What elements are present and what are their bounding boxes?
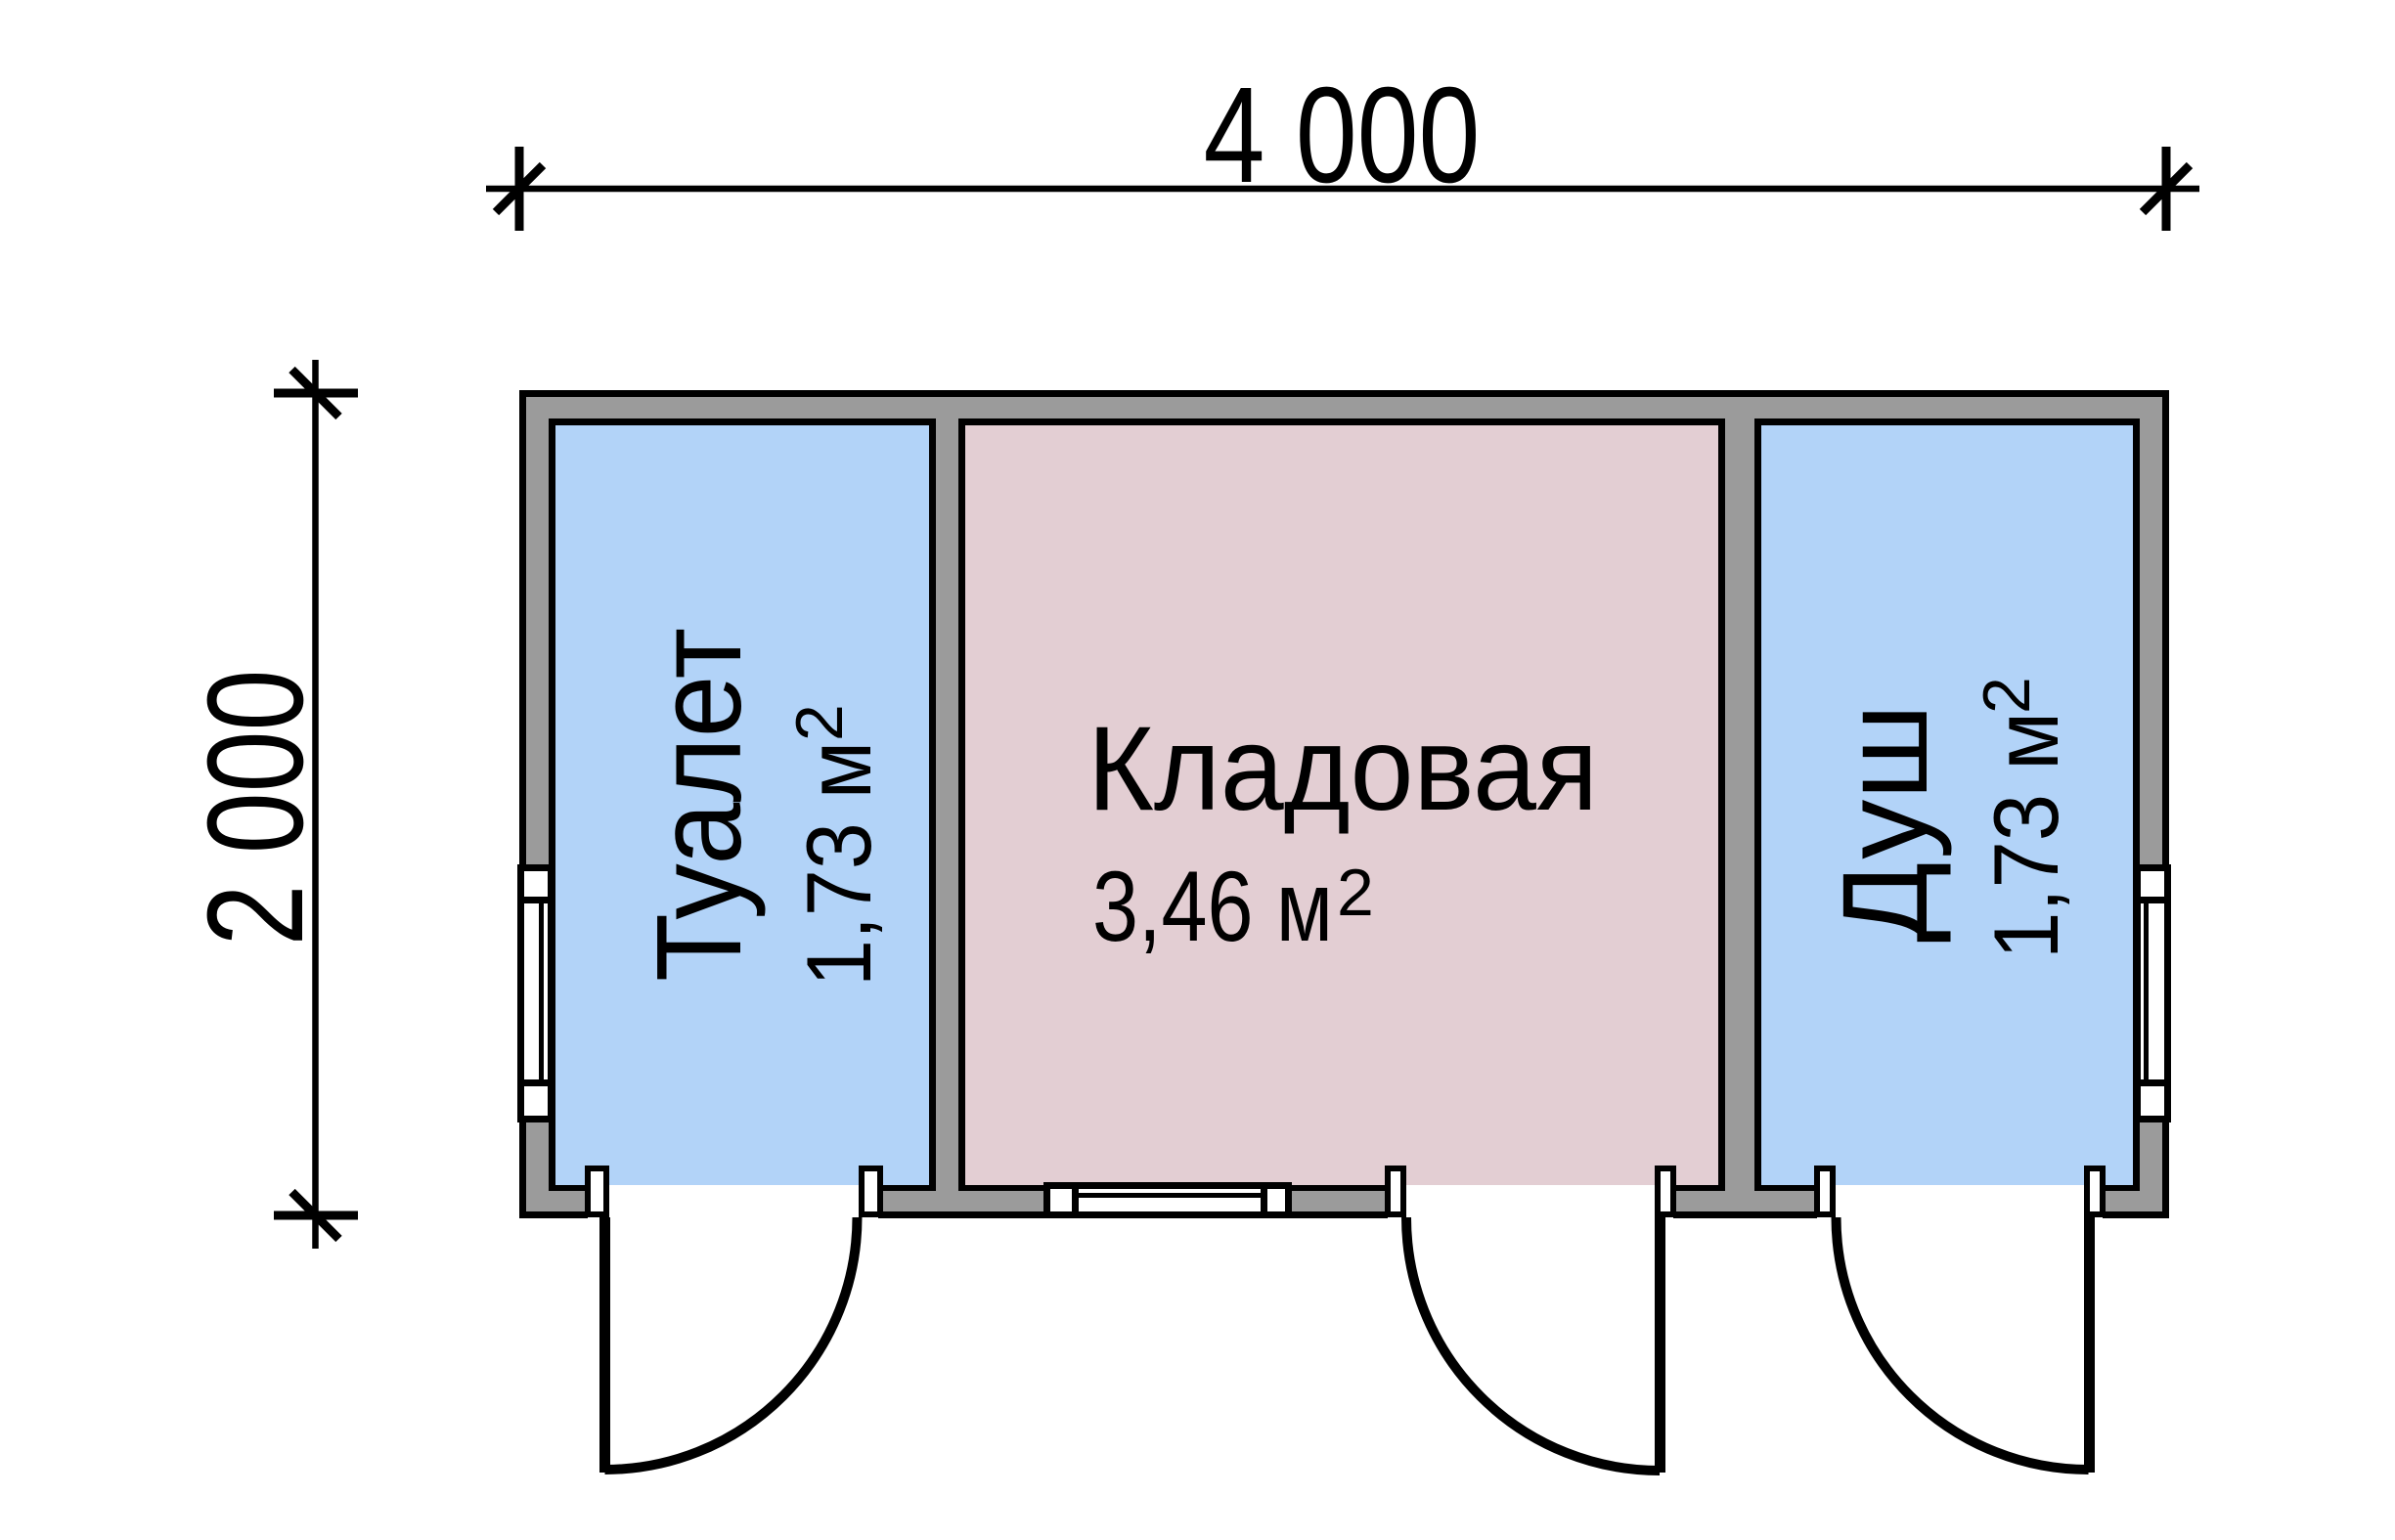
svg-text:2: 2 — [1970, 677, 2044, 714]
svg-text:4 000: 4 000 — [1204, 59, 1481, 211]
svg-text:2: 2 — [1337, 856, 1374, 930]
svg-text:Душ: Душ — [1819, 704, 1953, 943]
svg-text:1,73 м: 1,73 м — [787, 741, 890, 987]
svg-text:Кладовая: Кладовая — [1087, 701, 1598, 835]
svg-text:3,46 м: 3,46 м — [1092, 851, 1333, 962]
svg-text:2 000: 2 000 — [179, 670, 332, 946]
svg-text:Туалет: Туалет — [633, 628, 767, 982]
svg-text:2: 2 — [782, 704, 857, 741]
svg-text:1,73 м: 1,73 м — [1974, 712, 2077, 959]
